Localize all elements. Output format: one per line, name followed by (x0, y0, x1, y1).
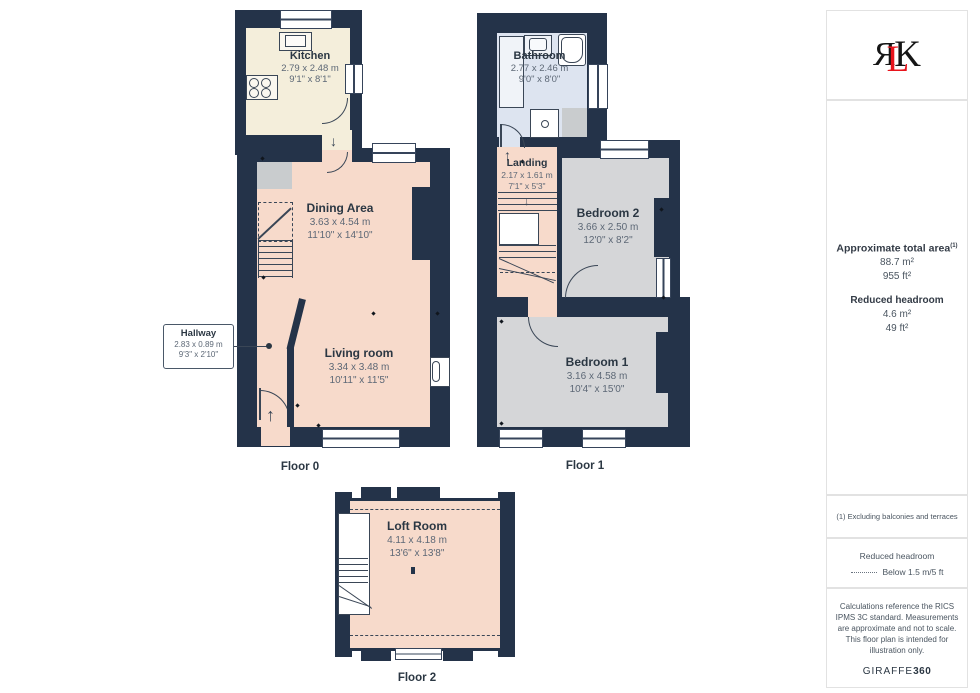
room-label-landing: Landing 2.17 x 1.61 m 7'1" x 5'3" (492, 157, 562, 192)
room-name: Bedroom 2 (543, 206, 673, 221)
window (280, 10, 332, 29)
stove-burner (261, 88, 271, 98)
area-title-text: Approximate total area (836, 243, 950, 255)
kitchen-corridor-floor (322, 130, 352, 151)
room-size-ft: 12'0" x 8'2" (543, 234, 673, 247)
callout-dot (266, 343, 272, 349)
brand-name: GIRAFFE360 (863, 666, 932, 677)
stairs (339, 558, 368, 585)
wall (397, 487, 440, 498)
room-size-ft: 10'11" x 11'5" (295, 374, 423, 387)
area-ft2: 955 ft² (827, 270, 967, 284)
logo-letter-k: K (894, 33, 921, 76)
window (372, 143, 416, 163)
room-size-ft: 9'1" x 8'1" (255, 74, 365, 85)
post (411, 567, 415, 574)
room-size-m: 2.79 x 2.48 m (255, 63, 365, 74)
floor-label-0: Floor 0 (250, 461, 350, 473)
room-size-m: 2.77 x 2.46 m (482, 63, 597, 74)
room-size-m: 3.66 x 2.50 m (543, 221, 673, 234)
footnote-text: (1) Excluding balconies and terraces (835, 512, 959, 521)
floor-label-2: Floor 2 (367, 672, 467, 684)
area-summary: Approximate total area(1) 88.7 m² 955 ft… (827, 239, 967, 336)
legend-panel: Reduced headroom Below 1.5 m/5 ft (826, 538, 968, 588)
door-threshold (528, 297, 557, 317)
wall (498, 492, 515, 505)
stairs (258, 240, 293, 278)
room-label-dining: Dining Area 3.63 x 4.54 m 11'10" x 14'10… (275, 201, 405, 242)
area-m2: 88.7 m² (827, 256, 967, 270)
wall (287, 347, 294, 427)
reduced-headroom-ft2: 49 ft² (827, 322, 967, 336)
disclaimer-panel: Calculations reference the RICS IPMS 3C … (826, 588, 968, 688)
wall (361, 487, 391, 498)
brand-logo: R L K (827, 33, 967, 76)
reduced-headroom-m2: 4.6 m² (827, 308, 967, 322)
wall (500, 492, 515, 657)
reduced-headroom-line (350, 635, 500, 636)
room-size-ft: 13'6" x 13'8" (353, 547, 481, 560)
room-name: Hallway (164, 328, 233, 340)
room-label-kitchen: Kitchen 2.79 x 2.48 m 9'1" x 8'1" (255, 50, 365, 85)
legend-row: Below 1.5 m/5 ft (835, 567, 959, 577)
reduced-headroom-line (500, 272, 555, 273)
spacer (827, 284, 967, 294)
reduced-headroom-line (350, 509, 500, 510)
window (600, 140, 649, 159)
floor-label-1: Floor 1 (535, 460, 635, 472)
wall (443, 651, 473, 661)
hallway-callout: Hallway 2.83 x 0.89 m 9'3" x 2'10" (163, 324, 234, 369)
kitchen-sink-basin (285, 35, 306, 47)
logo-panel: R L K (826, 10, 968, 100)
down-arrow-icon: ↓ (524, 194, 530, 210)
wall (361, 651, 391, 661)
room-size-m: 2.83 x 0.89 m (164, 340, 233, 350)
room-label-bathroom: Bathroom 2.77 x 2.46 m 9'0" x 8'0" (482, 50, 597, 85)
room-name: Bathroom (482, 50, 597, 63)
room-name: Landing (492, 157, 562, 170)
window (656, 258, 671, 298)
room-size-m: 2.17 x 1.61 m (492, 170, 562, 181)
room-size-ft: 11'10" x 14'10" (275, 229, 405, 242)
reduced-headroom-title: Reduced headroom (827, 294, 967, 308)
window (582, 429, 626, 448)
window (395, 648, 442, 660)
room-size-ft: 9'3" x 2'10" (164, 350, 233, 360)
legend-title: Reduced headroom (835, 551, 959, 561)
room-label-bedroom1: Bedroom 1 3.16 x 4.58 m 10'4" x 15'0" (532, 355, 662, 396)
footnote-panel: (1) Excluding balconies and terraces (826, 495, 968, 538)
door-leaf (259, 388, 261, 420)
brand-text: GIRAFFE360 (835, 661, 959, 679)
wall (498, 644, 515, 657)
area-footnote-marker: (1) (950, 243, 957, 249)
room-label-living: Living room 3.34 x 3.48 m 10'11" x 11'5" (295, 346, 423, 387)
room-size-m: 4.11 x 4.18 m (353, 534, 481, 547)
storage-area (257, 162, 292, 189)
down-arrow-icon: ↓ (330, 133, 337, 149)
storage-area (562, 108, 587, 137)
stairs-landing (499, 213, 539, 245)
room-name: Kitchen (255, 50, 365, 63)
dotted-line-icon (851, 572, 877, 573)
chimney-breast (412, 187, 450, 260)
room-label-bedroom2: Bedroom 2 3.66 x 2.50 m 12'0" x 8'2" (543, 206, 673, 247)
floorplan-canvas: ↓ ↑ Hallway 2.83 x 0.89 m 9'3" x 2'10" K… (0, 0, 980, 693)
shower-drain (541, 120, 549, 128)
room-size-ft: 10'4" x 15'0" (532, 383, 662, 396)
room-name: Bedroom 1 (532, 355, 662, 370)
stove-burner (249, 88, 259, 98)
room-size-m: 3.16 x 4.58 m (532, 370, 662, 383)
window (499, 429, 543, 448)
room-size-ft: 7'1" x 5'3" (492, 181, 562, 192)
entry-door-opening (261, 427, 290, 446)
room-size-m: 3.34 x 3.48 m (295, 361, 423, 374)
room-name: Living room (295, 346, 423, 361)
room-name: Dining Area (275, 201, 405, 216)
window (322, 429, 400, 448)
brand-bold: 360 (913, 666, 931, 677)
area-panel: Approximate total area(1) 88.7 m² 955 ft… (826, 100, 968, 495)
room-label-loft: Loft Room 4.11 x 4.18 m 13'6" x 13'8" (353, 519, 481, 560)
area-title: Approximate total area(1) (827, 239, 967, 256)
brand-regular: GIRAFFE (863, 666, 913, 677)
callout-line (232, 346, 268, 347)
legend-item: Below 1.5 m/5 ft (883, 567, 944, 577)
room-name: Loft Room (353, 519, 481, 534)
up-arrow-icon: ↑ (266, 407, 275, 423)
door-leaf (500, 124, 502, 147)
fireplace-inner (432, 361, 440, 382)
room-size-ft: 9'0" x 8'0" (482, 74, 597, 85)
room-size-m: 3.63 x 4.54 m (275, 216, 405, 229)
disclaimer-text: Calculations reference the RICS IPMS 3C … (835, 601, 959, 656)
